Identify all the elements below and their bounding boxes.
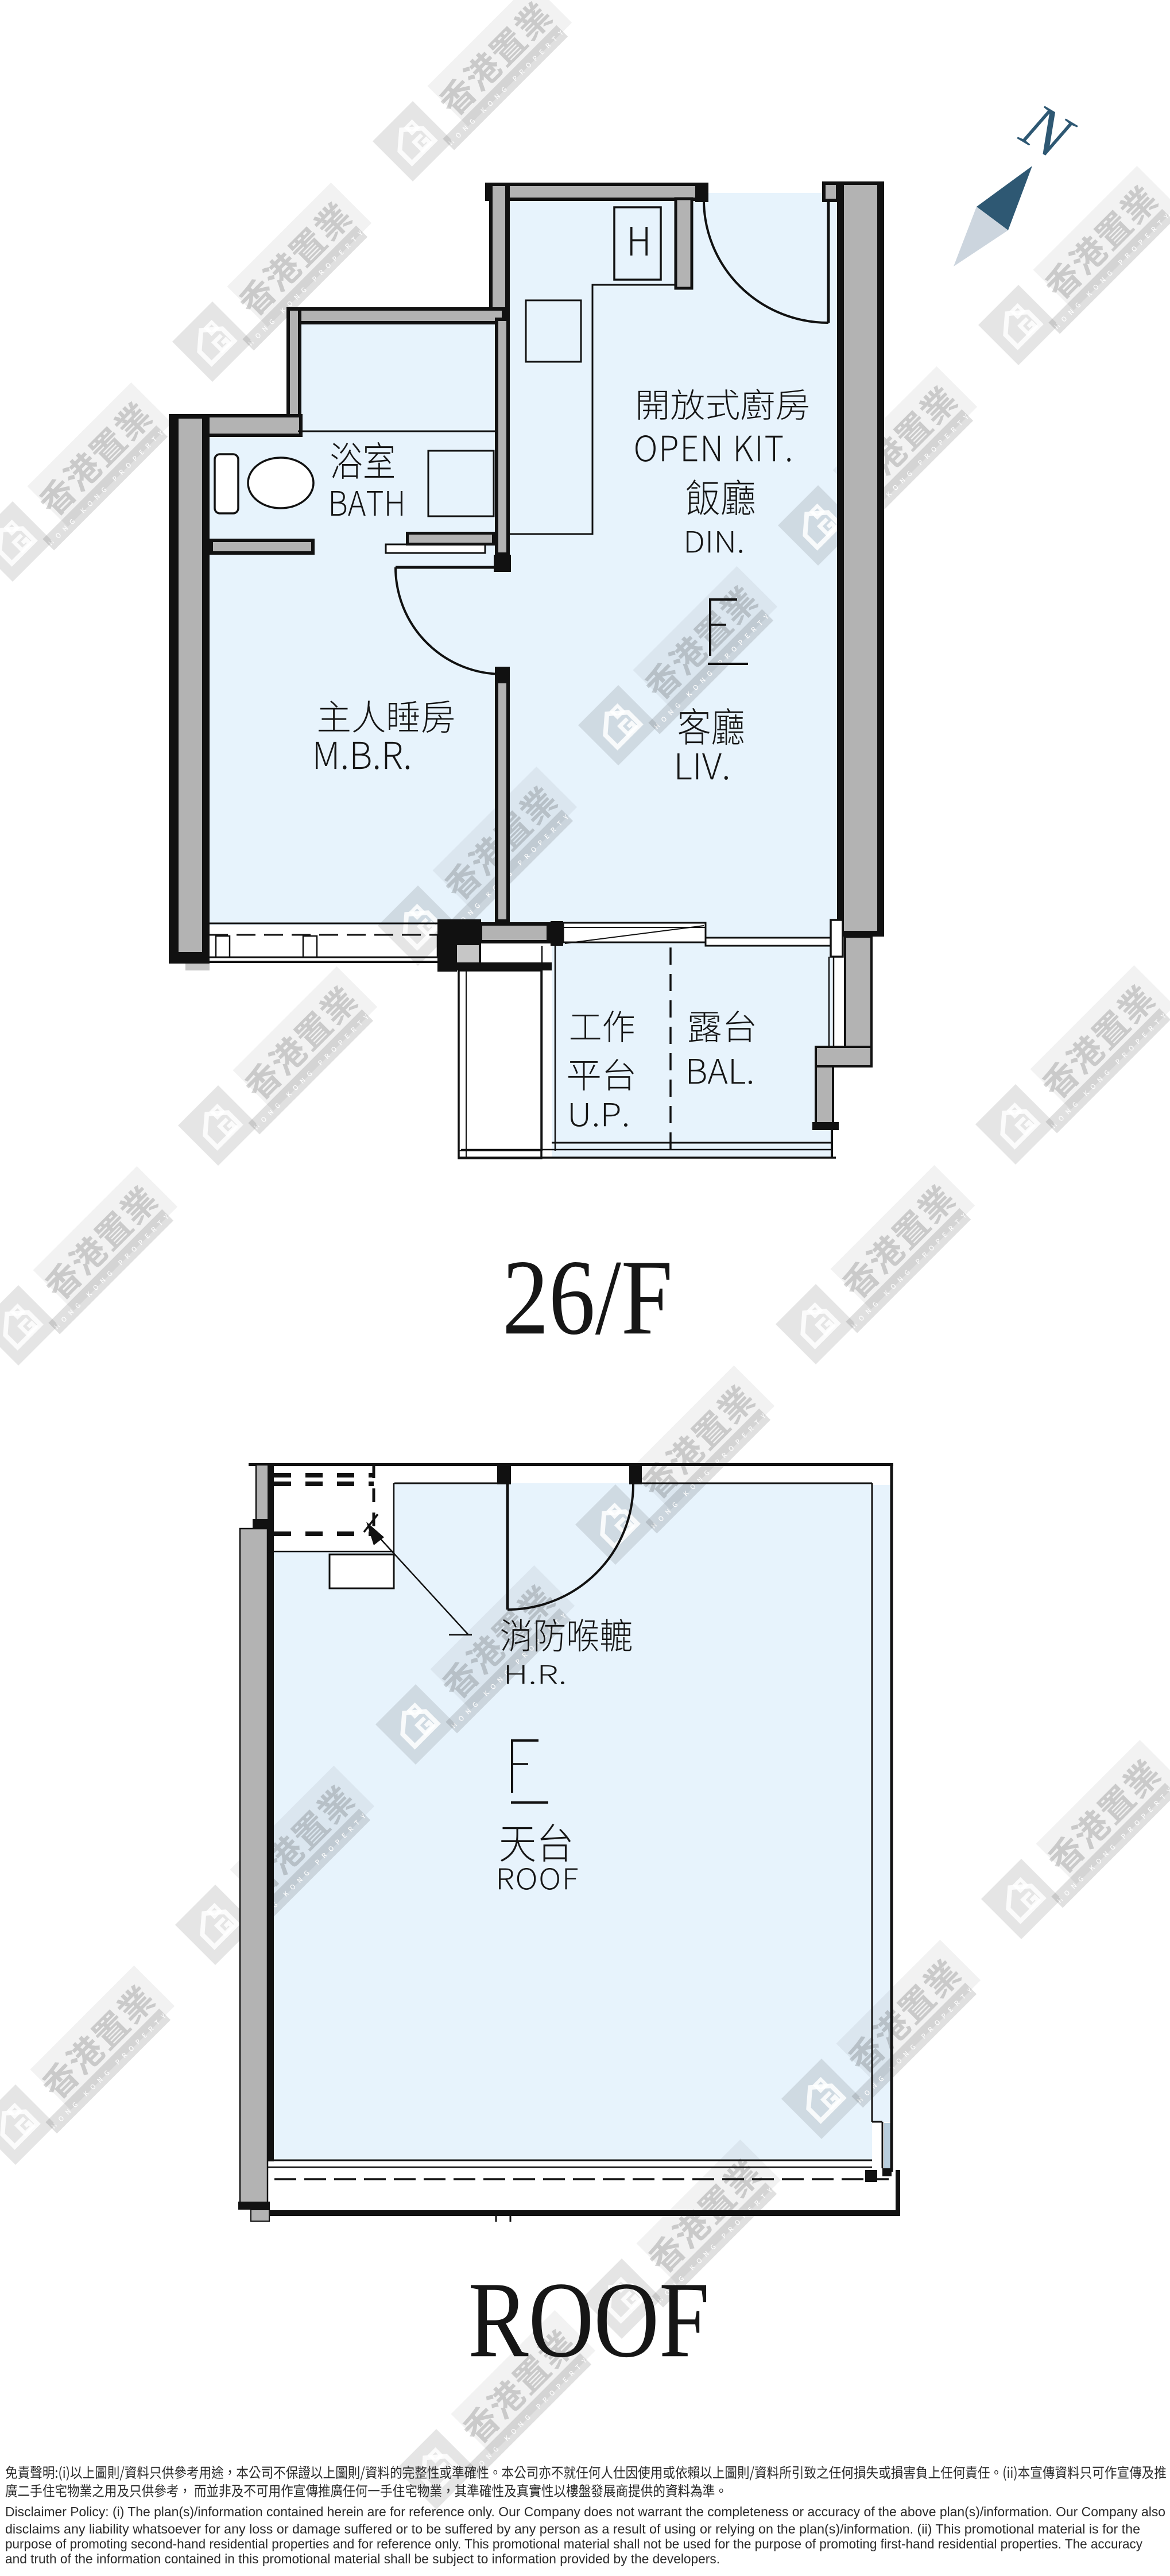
svg-text:Disclaimer Policy: (i) The pla: Disclaimer Policy: (i) The plan(s)/infor… (5, 2504, 1165, 2519)
svg-text:disclaims any liability whatso: disclaims any liability whatsoever for a… (5, 2521, 1140, 2536)
svg-text:purpose of promoting second-ha: purpose of promoting second-hand residen… (5, 2536, 1142, 2551)
svg-text:and truth of the information c: and truth of the information contained i… (5, 2551, 720, 2566)
